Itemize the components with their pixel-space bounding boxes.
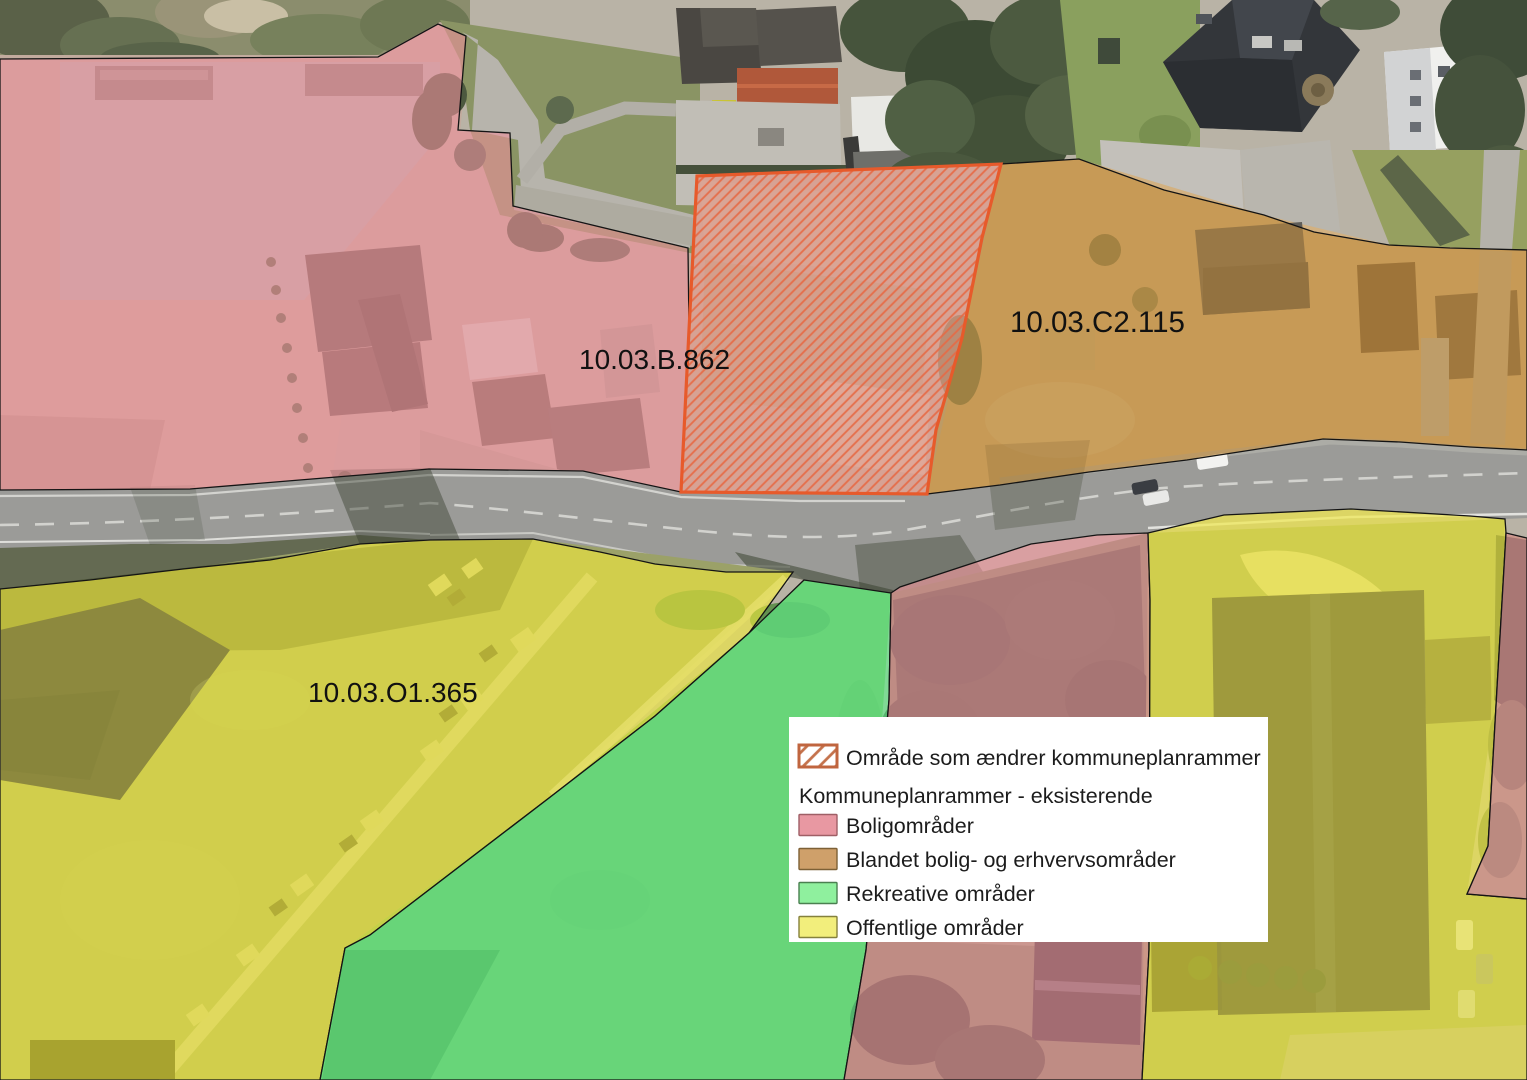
svg-text:10.03.O1.365: 10.03.O1.365 (308, 677, 478, 708)
svg-text:Rekreative områder: Rekreative områder (846, 882, 1035, 906)
svg-text:Blandet bolig- og erhvervsområ: Blandet bolig- og erhvervsområder (846, 848, 1176, 872)
svg-text:10.03.C2.115: 10.03.C2.115 (1010, 306, 1185, 339)
svg-text:Kommuneplanrammer - eksisteren: Kommuneplanrammer - eksisterende (799, 784, 1153, 808)
svg-text:Boligområder: Boligområder (846, 814, 974, 838)
svg-text:Område som ændrer kommuneplanr: Område som ændrer kommuneplanrammer (846, 746, 1261, 770)
svg-text:Offentlige områder: Offentlige områder (846, 916, 1024, 940)
svg-text:10.03.B.862: 10.03.B.862 (579, 344, 730, 375)
